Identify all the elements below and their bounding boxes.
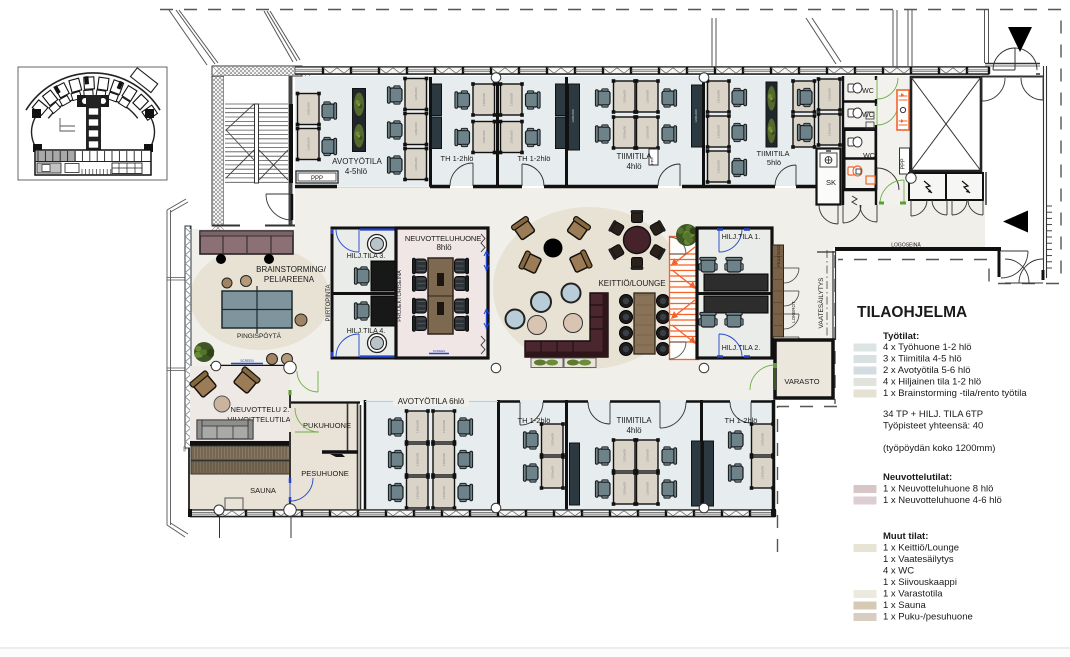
svg-text:1200x600: 1200x600 xyxy=(306,102,310,116)
svg-text:TILAOHJELMA: TILAOHJELMA xyxy=(857,304,967,321)
svg-text:WC: WC xyxy=(862,112,874,119)
svg-text:1200x600: 1200x600 xyxy=(645,449,649,463)
svg-text:PROJEKTORISEINÄ: PROJEKTORISEINÄ xyxy=(396,270,403,322)
svg-text:1200x600: 1200x600 xyxy=(306,137,310,151)
svg-text:1200x600: 1200x600 xyxy=(645,126,649,140)
svg-text:PINGISPÖYTÄ: PINGISPÖYTÄ xyxy=(237,332,282,340)
svg-text:1200x600: 1200x600 xyxy=(622,449,626,463)
svg-text:1200x600: 1200x600 xyxy=(622,482,626,496)
svg-text:HILJ.TILA 4.: HILJ.TILA 4. xyxy=(347,328,386,335)
svg-text:1200x600: 1200x600 xyxy=(827,123,831,137)
svg-text:1200x600: 1200x600 xyxy=(550,466,554,480)
svg-text:SK: SK xyxy=(826,178,836,187)
svg-text:1200x600: 1200x600 xyxy=(414,87,418,101)
svg-text:1200x600: 1200x600 xyxy=(622,90,626,104)
svg-text:Työtilat:: Työtilat: xyxy=(883,331,919,342)
svg-text:LOGOSEINÄ: LOGOSEINÄ xyxy=(891,242,921,249)
svg-text:KEITTIÖ/LOUNGE: KEITTIÖ/LOUNGE xyxy=(598,279,665,288)
svg-text:1200x600: 1200x600 xyxy=(442,420,446,434)
svg-text:1200x600: 1200x600 xyxy=(760,433,764,447)
svg-text:SAUNA: SAUNA xyxy=(250,486,276,495)
svg-text:WC: WC xyxy=(862,88,874,95)
svg-text:PEILI/TASO: PEILI/TASO xyxy=(776,245,781,267)
svg-text:Työpisteet yhteensä: 40: Työpisteet yhteensä: 40 xyxy=(883,421,983,432)
svg-text:SCREEN: SCREEN xyxy=(240,359,254,363)
svg-text:1200x600: 1200x600 xyxy=(716,160,720,174)
svg-text:1200x600: 1200x600 xyxy=(482,93,486,107)
svg-text:1 x Keittiö/Lounge: 1 x Keittiö/Lounge xyxy=(883,543,959,554)
svg-text:VAATESÄILYTYS: VAATESÄILYTYS xyxy=(817,277,825,329)
svg-text:PPP: PPP xyxy=(901,158,907,169)
svg-text:1200x600: 1200x600 xyxy=(414,157,418,171)
svg-text:VARASTO: VARASTO xyxy=(784,377,819,386)
svg-text:1 x Varastotila: 1 x Varastotila xyxy=(883,589,943,600)
svg-text:1200x600: 1200x600 xyxy=(509,93,513,107)
svg-text:1 x Siivouskaappi: 1 x Siivouskaappi xyxy=(883,577,957,588)
svg-text:1200x600: 1200x600 xyxy=(415,486,419,500)
svg-text:PUKUHUONE: PUKUHUONE xyxy=(303,421,351,430)
svg-text:4 x WC: 4 x WC xyxy=(883,566,914,577)
svg-text:Neuvottelutilat:: Neuvottelutilat: xyxy=(883,472,952,483)
svg-text:1200x400: 1200x400 xyxy=(694,109,698,123)
svg-text:1 x Vaatesäilytys: 1 x Vaatesäilytys xyxy=(883,554,954,565)
svg-text:TH 1-2hlö: TH 1-2hlö xyxy=(441,154,474,163)
svg-text:1200x600: 1200x600 xyxy=(414,122,418,136)
svg-text:1200x600: 1200x600 xyxy=(482,130,486,144)
svg-text:4hlö: 4hlö xyxy=(626,162,642,171)
svg-text:PELIAREENA: PELIAREENA xyxy=(264,275,315,284)
svg-text:4-5hlö: 4-5hlö xyxy=(345,167,368,176)
svg-text:PESUHUONE: PESUHUONE xyxy=(301,469,349,478)
svg-text:AVOTYÖTILA: AVOTYÖTILA xyxy=(332,157,382,166)
svg-text:PPP: PPP xyxy=(311,176,323,182)
svg-text:TH 1-2hlö: TH 1-2hlö xyxy=(518,154,551,163)
svg-text:SCREEN: SCREEN xyxy=(433,349,446,353)
svg-text:1200x600: 1200x600 xyxy=(716,90,720,104)
svg-text:4 x Työhuone 1-2 hlö: 4 x Työhuone 1-2 hlö xyxy=(883,342,972,353)
svg-text:AVOTYÖTILA 6hlö: AVOTYÖTILA 6hlö xyxy=(398,397,465,406)
svg-text:WC: WC xyxy=(863,153,875,160)
svg-text:1 x Neuvotteluhuone 4-6 hlö: 1 x Neuvotteluhuone 4-6 hlö xyxy=(883,495,1002,506)
svg-text:1 x Brainstorming -tila/rento: 1 x Brainstorming -tila/rento työtila xyxy=(883,388,1027,399)
svg-text:TIIMITILA: TIIMITILA xyxy=(757,149,790,158)
svg-text:NEUVOTTELUHUONE: NEUVOTTELUHUONE xyxy=(405,234,481,243)
svg-text:4hlö: 4hlö xyxy=(626,426,642,435)
svg-text:1200x600: 1200x600 xyxy=(622,126,626,140)
svg-text:1200x600: 1200x600 xyxy=(645,482,649,496)
svg-text:TIIMITILA: TIIMITILA xyxy=(616,152,652,161)
svg-text:1200x600: 1200x600 xyxy=(550,433,554,447)
svg-text:HILJ.TILA 3.: HILJ.TILA 3. xyxy=(347,253,386,260)
svg-text:1 x Sauna: 1 x Sauna xyxy=(883,600,926,611)
svg-text:1200x600: 1200x600 xyxy=(509,130,513,144)
svg-text:1200x600: 1200x600 xyxy=(760,466,764,480)
svg-text:1200x600: 1200x600 xyxy=(716,125,720,139)
svg-text:TIIMITILA: TIIMITILA xyxy=(616,416,652,425)
svg-text:1200x600: 1200x600 xyxy=(415,420,419,434)
svg-text:NEUVOTTELU 2. /: NEUVOTTELU 2. / xyxy=(231,405,295,414)
svg-text:LOKEROT: LOKEROT xyxy=(791,301,796,323)
svg-text:1200x400: 1200x400 xyxy=(571,109,575,123)
svg-text:BRAINSTORMING/: BRAINSTORMING/ xyxy=(256,265,326,274)
svg-text:(työpöydän koko 1200mm): (työpöydän koko 1200mm) xyxy=(883,443,995,454)
svg-text:5hlö: 5hlö xyxy=(767,158,781,167)
svg-text:2 x Avotyötila 5-6 hlö: 2 x Avotyötila 5-6 hlö xyxy=(883,365,971,376)
svg-text:1200x600: 1200x600 xyxy=(645,90,649,104)
svg-text:34 TP + HILJ. TILA 6TP: 34 TP + HILJ. TILA 6TP xyxy=(883,409,983,420)
svg-text:1200x600: 1200x600 xyxy=(415,453,419,467)
svg-text:8hlö: 8hlö xyxy=(436,243,452,252)
svg-text:SP: SP xyxy=(182,446,187,452)
svg-text:Muut tilat:: Muut tilat: xyxy=(883,531,928,542)
svg-text:1 x Neuvotteluhuone 8 hlö: 1 x Neuvotteluhuone 8 hlö xyxy=(883,484,993,495)
svg-text:1200x600: 1200x600 xyxy=(827,88,831,102)
svg-text:1200x600: 1200x600 xyxy=(442,453,446,467)
svg-text:3 x Tiimitila 4-5 hlö: 3 x Tiimitila 4-5 hlö xyxy=(883,354,962,365)
svg-text:4 x Hiljainen tila 1-2 hlö: 4 x Hiljainen tila 1-2 hlö xyxy=(883,377,981,388)
svg-text:1200x600: 1200x600 xyxy=(442,486,446,500)
svg-text:1 x Puku-/pesuhuone: 1 x Puku-/pesuhuone xyxy=(883,612,973,623)
